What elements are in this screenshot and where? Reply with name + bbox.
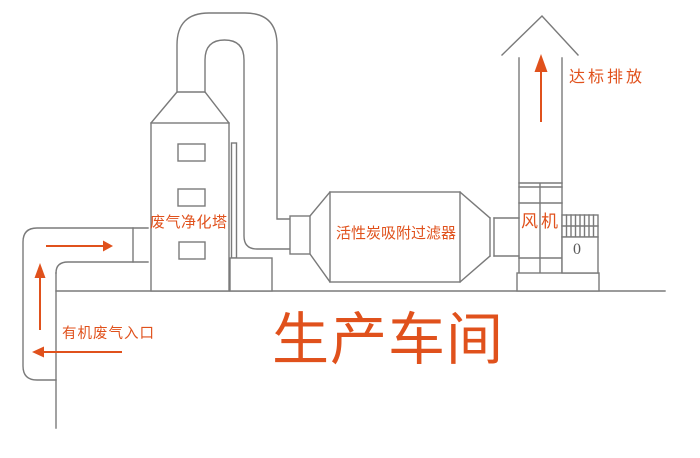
tower-window-middle <box>178 189 205 206</box>
emission-label: 达标排放 <box>569 70 645 86</box>
flow-arrow-right-inlet <box>46 241 113 252</box>
process-flow-diagram: 废气净化塔 活性炭吸附过滤器 风机 达标排放 有机废气入口 生产车间 0 <box>0 0 700 458</box>
motor-zero-mark: 0 <box>566 242 588 258</box>
motor-fin-lines <box>567 215 594 237</box>
tower-side-pipe <box>232 143 237 258</box>
inlet-label: 有机废气入口 <box>62 327 155 342</box>
inlet-duct-outer-edge <box>23 228 148 380</box>
tower-window-bottom <box>179 242 205 259</box>
inlet-duct-inner-edge <box>56 262 148 273</box>
filter-label: 活性炭吸附过滤器 <box>336 227 456 242</box>
purification-tower <box>151 92 272 291</box>
filter-inlet-flange <box>290 216 310 254</box>
inlet-duct <box>23 228 148 380</box>
tower-pump-box <box>230 258 272 291</box>
stack-rain-cap <box>502 16 578 55</box>
exhaust-stack <box>502 16 578 55</box>
tower-roof <box>151 92 229 123</box>
workshop-title: 生产车间 <box>272 312 504 369</box>
filter-left-reducer-top <box>310 192 330 216</box>
flow-arrow-up-exhaust <box>535 54 548 122</box>
fan-base-plate <box>517 273 599 291</box>
filter-right-reducer-bottom <box>460 256 490 282</box>
flow-arrow-left-intake <box>32 347 122 358</box>
tower-window-top <box>178 144 205 161</box>
flow-arrow-up-riser <box>35 263 46 330</box>
filter-left-reducer-bottom <box>310 254 330 282</box>
tower-label: 废气净化塔 <box>150 216 228 231</box>
filter-right-reducer-top <box>460 192 490 218</box>
fan-label: 风机 <box>521 213 561 230</box>
